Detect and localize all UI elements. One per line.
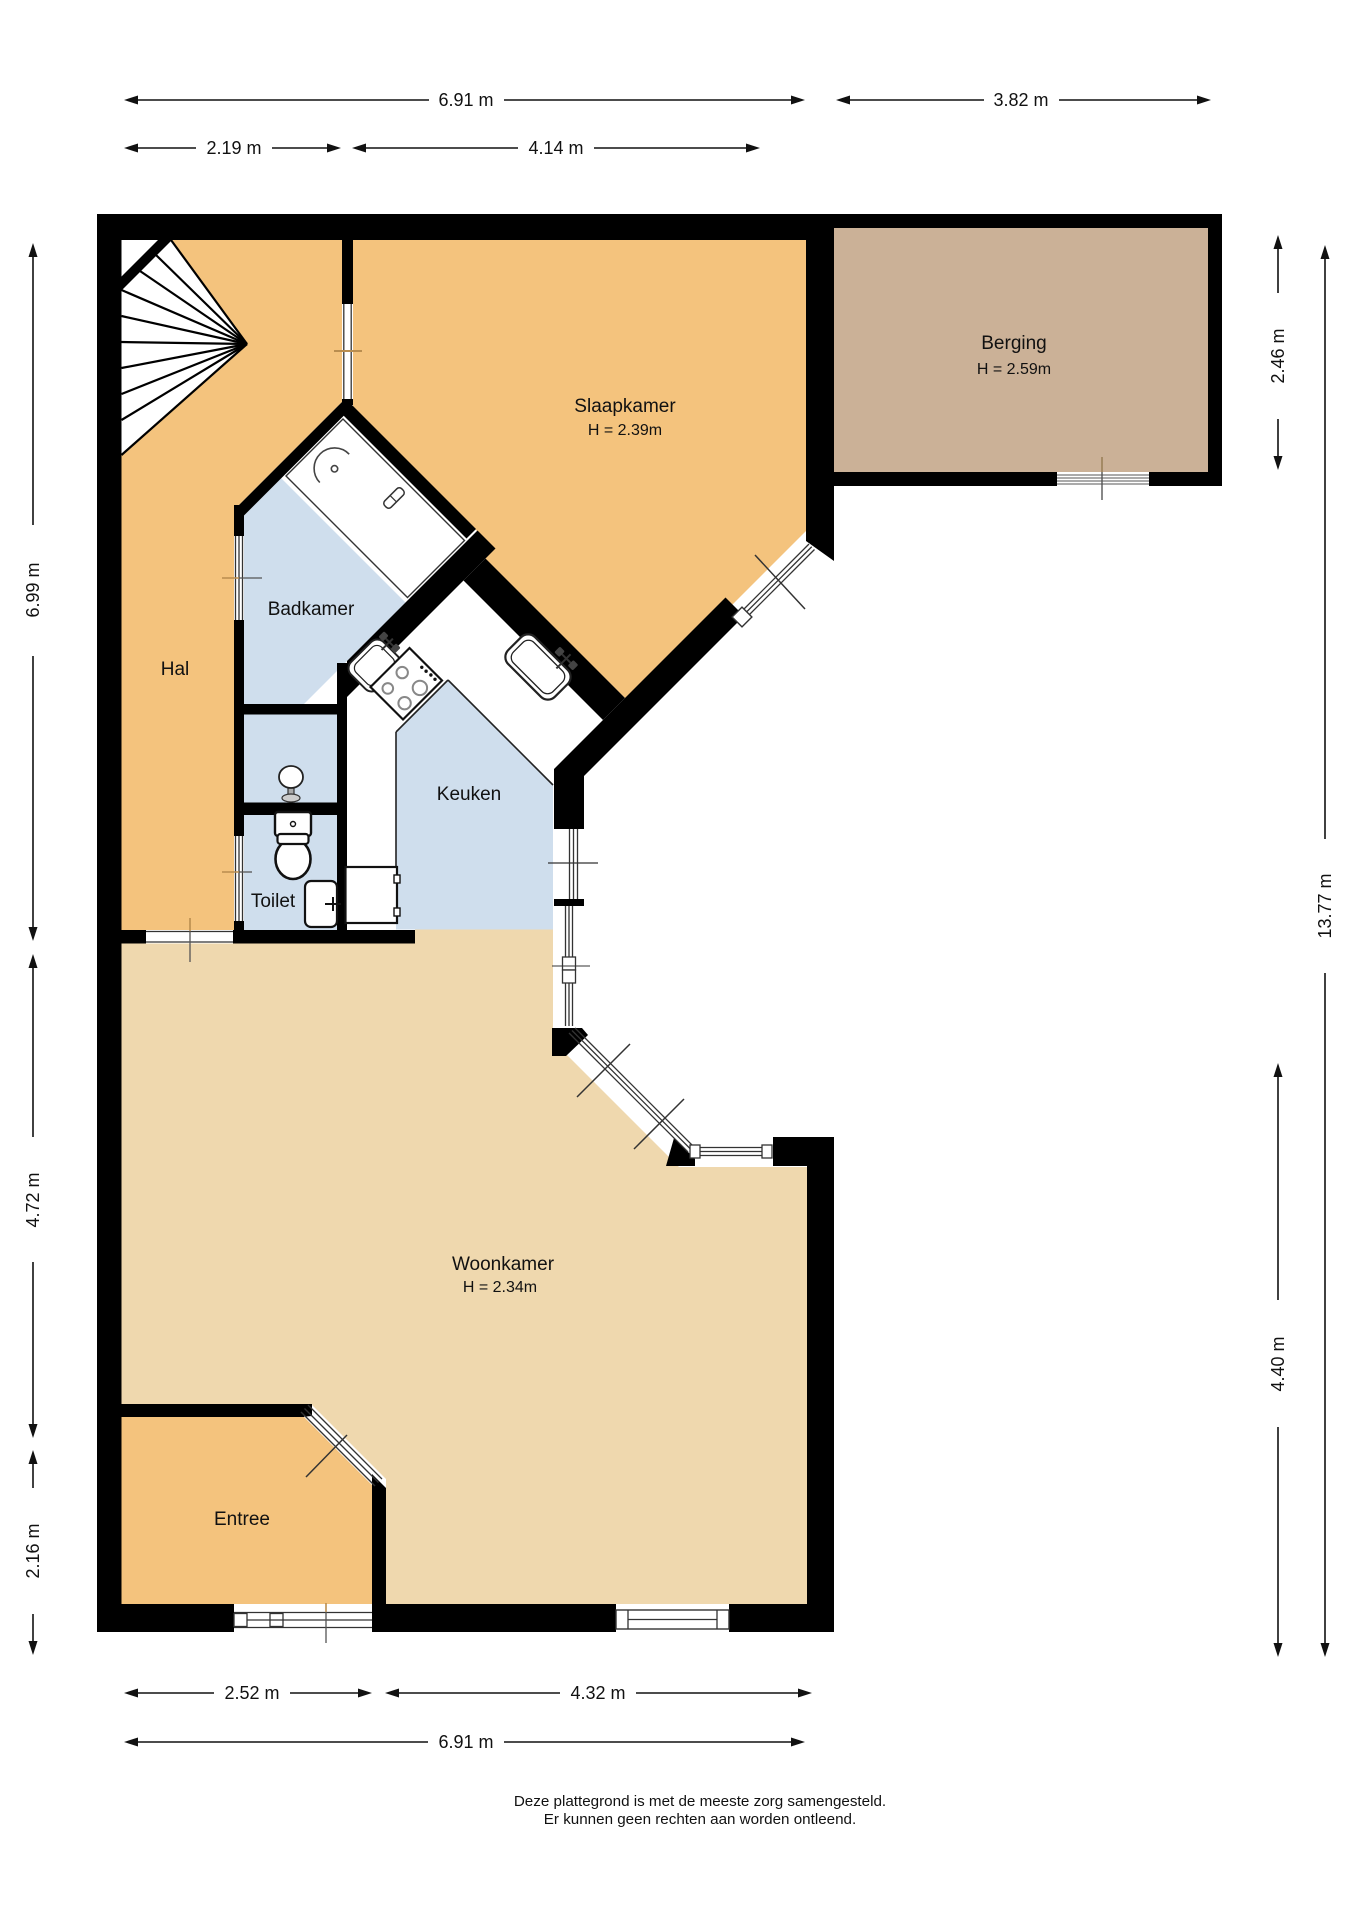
svg-text:2.16 m: 2.16 m [23, 1523, 43, 1578]
svg-text:6.91 m: 6.91 m [438, 1732, 493, 1752]
svg-text:4.72 m: 4.72 m [23, 1172, 43, 1227]
svg-text:Slaapkamer: Slaapkamer [574, 396, 676, 417]
svg-text:4.32 m: 4.32 m [570, 1683, 625, 1703]
svg-text:Keuken: Keuken [437, 784, 501, 805]
svg-text:2.19 m: 2.19 m [206, 138, 261, 158]
svg-text:H = 2.34m: H = 2.34m [463, 1279, 537, 1296]
svg-text:H = 2.39m: H = 2.39m [588, 422, 662, 439]
svg-text:Woonkamer: Woonkamer [452, 1254, 555, 1275]
svg-text:6.91 m: 6.91 m [438, 90, 493, 110]
svg-text:2.52 m: 2.52 m [224, 1683, 279, 1703]
svg-text:3.82 m: 3.82 m [993, 90, 1048, 110]
svg-text:Berging: Berging [981, 333, 1047, 354]
svg-text:Deze plattegrond is met de mee: Deze plattegrond is met de meeste zorg s… [514, 1793, 886, 1810]
svg-text:Badkamer: Badkamer [268, 599, 355, 620]
svg-text:Toilet: Toilet [251, 891, 296, 912]
svg-text:6.99 m: 6.99 m [23, 562, 43, 617]
svg-text:4.14 m: 4.14 m [528, 138, 583, 158]
svg-text:Hal: Hal [161, 659, 190, 680]
svg-text:Entree: Entree [214, 1509, 270, 1530]
svg-text:Er kunnen geen rechten aan wor: Er kunnen geen rechten aan worden ontlee… [544, 1811, 856, 1828]
svg-text:13.77 m: 13.77 m [1315, 873, 1335, 938]
svg-text:H = 2.59m: H = 2.59m [977, 361, 1051, 378]
svg-text:4.40 m: 4.40 m [1268, 1336, 1288, 1391]
svg-text:2.46 m: 2.46 m [1268, 328, 1288, 383]
